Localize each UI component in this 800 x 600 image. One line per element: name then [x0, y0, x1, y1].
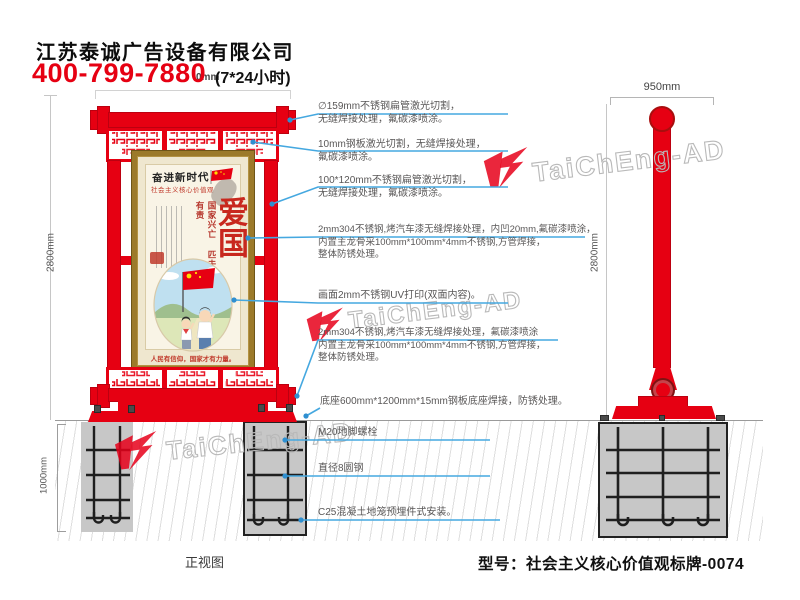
annotation-uv-print: 画面2mm不锈钢UV打印(双面内容)。 [318, 290, 481, 303]
watermark-text: TaiChEng-AD [531, 134, 727, 188]
side-pole-top-cap [649, 106, 675, 132]
underground-dim-label: 1000mm [39, 448, 50, 504]
top-crossbar-end-nub-right [288, 110, 296, 130]
top-crossbar [108, 112, 278, 128]
left-column [107, 160, 121, 370]
top-width-dim-tick-right [290, 90, 291, 99]
anchor-bolt [659, 415, 665, 421]
annotation-round-steel: 直径8圆钢 [318, 463, 364, 476]
service-hours: (7*24小时) [215, 64, 291, 88]
annotation-concrete: C25混凝土地笼预埋件式安装。 [318, 507, 456, 520]
front-height-dim-label: 2800mm [46, 224, 57, 282]
model-number-label: 型号：社会主义核心价值观标牌-0074 [478, 552, 744, 574]
annotation-base-plate: 底座600mm*1200mm*15mm钢板底座焊接，防锈处理。 [320, 396, 568, 409]
side-width-dim-tick-left [610, 97, 611, 105]
side-width-dim-line [610, 97, 713, 98]
underground-dim-tick-bottom [57, 531, 66, 532]
annotation-lower-steel: 2mm304不锈钢,烤汽车漆无缝焊接处理，氟碳漆喷涂内置主龙骨采100mm*10… [318, 327, 546, 365]
annotation-frame-tube: 100*120mm不锈钢扁管激光切割，无缝焊接处理，氟碳漆喷涂。 [318, 175, 472, 200]
side-rebar-cage [598, 422, 728, 538]
poster-oval-illustration [153, 258, 233, 352]
front-view-label: 正视图 [185, 552, 224, 571]
side-width-dim-label: 950mm [630, 81, 694, 93]
annotation-anchor-bolt: M20地脚螺栓 [318, 427, 377, 440]
top-width-dim-tick-left [95, 90, 96, 99]
anchor-bolt [716, 415, 725, 421]
phone-number: 400-799-7880 [32, 58, 206, 89]
taicheng-logo-watermark [111, 429, 164, 473]
anchor-bolt [600, 415, 609, 421]
annotation-cabinet-steel: 2mm304不锈钢,烤汽车漆无缝焊接处理，内凹20mm,氟碳漆喷涂，内置主龙骨采… [318, 224, 596, 262]
right-column [264, 160, 278, 370]
anchor-bolt [94, 405, 101, 413]
side-width-dim-tick-right [713, 97, 714, 105]
anchor-bolt [128, 405, 135, 413]
underground-dim-line [57, 424, 58, 532]
technical-drawing-page: 江苏泰诚广告设备有限公司 0mm 400-799-7880 (7*24小时) 2… [0, 0, 800, 600]
bottom-crossbar-end-nub-right [288, 387, 296, 405]
front-height-dim-tick-top [44, 95, 57, 96]
underground-dim-tick-top [57, 424, 66, 425]
annotation-top-tube: ∅159mm不锈钢扁管激光切割，无缝焊接处理，氟碳漆喷涂。 [318, 101, 460, 126]
annotation-steel-plate: 10mm钢板激光切割，无缝焊接处理，氟碳漆喷涂。 [318, 139, 486, 164]
front-pedestal [118, 400, 268, 412]
top-width-dim-line [95, 90, 290, 91]
poster-series-label: 社会主义核心价值观 [151, 184, 214, 194]
poster-caption: 人民有信仰，国家才有力量。 [137, 353, 249, 363]
anchor-bolt [258, 404, 265, 412]
anchor-bolt [286, 404, 293, 412]
taicheng-logo-watermark [480, 145, 533, 191]
